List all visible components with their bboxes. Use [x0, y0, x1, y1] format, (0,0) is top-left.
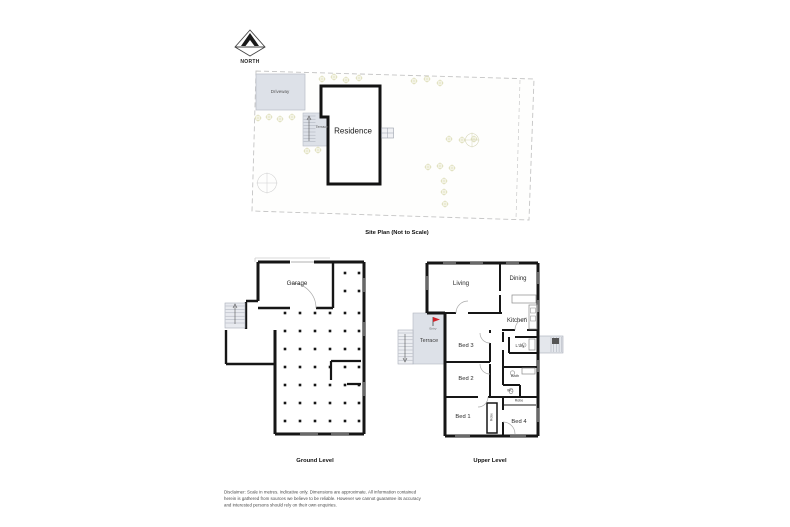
disclaimer-line-3: and interested persons should rely on th…: [224, 502, 421, 509]
site-residence-outline: [321, 86, 380, 184]
subfloor-piers: [284, 272, 361, 423]
disclaimer-text: Disclaimer: Scale in metres. Indicative …: [224, 489, 421, 509]
floor-plan-page: NORTH Driveway Terrace Residence Site Pl…: [0, 0, 790, 527]
ground-level-walls: [226, 258, 364, 434]
upper-terrace-area: [413, 313, 445, 364]
upper-stairs-left: [398, 330, 413, 364]
upper-stairs-landing-right: [539, 336, 563, 353]
site-porch-steps: [382, 128, 394, 138]
plan-drawing: [0, 0, 790, 527]
upper-fixtures: [509, 295, 537, 394]
ground-stairs: [225, 303, 245, 328]
upper-level-walls: [427, 263, 538, 436]
site-driveway-area: [256, 74, 305, 110]
north-compass-icon: [235, 30, 265, 56]
